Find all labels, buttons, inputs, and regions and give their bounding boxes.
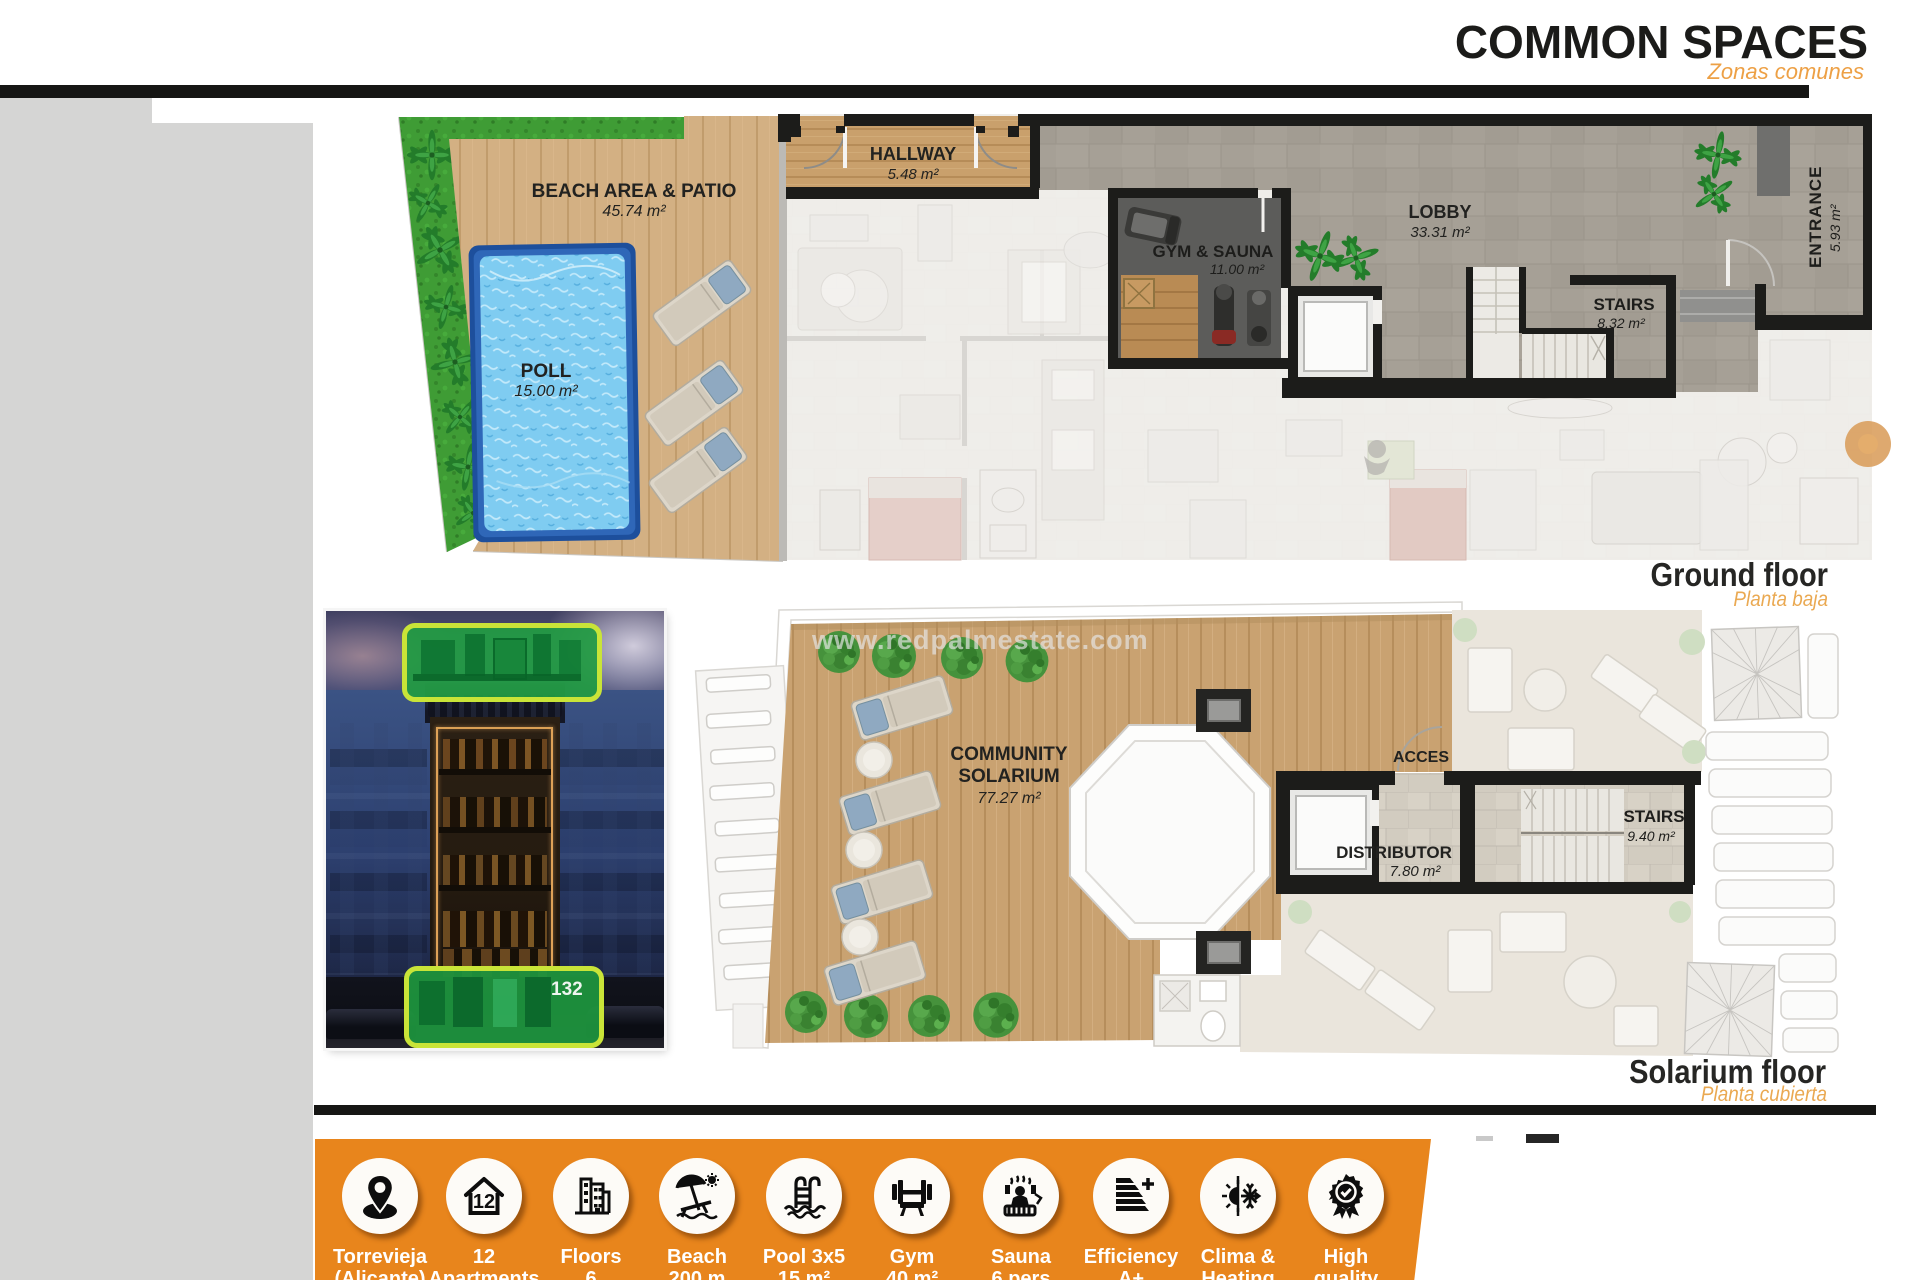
svg-text:HALLWAY: HALLWAY <box>870 144 956 164</box>
svg-text:STAIRS: STAIRS <box>1593 295 1654 314</box>
svg-text:15.00 m²: 15.00 m² <box>514 383 578 400</box>
svg-text:77.27 m²: 77.27 m² <box>977 790 1041 807</box>
svg-text:33.31 m²: 33.31 m² <box>1410 224 1470 241</box>
svg-text:45.74 m²: 45.74 m² <box>602 203 666 220</box>
svg-text:8.32 m²: 8.32 m² <box>1597 315 1646 331</box>
svg-text:COMMUNITY: COMMUNITY <box>950 744 1067 765</box>
svg-text:ACCES: ACCES <box>1393 749 1449 766</box>
svg-text:11.00 m²: 11.00 m² <box>1210 261 1266 277</box>
svg-text:7.80 m²: 7.80 m² <box>1390 863 1442 880</box>
svg-text:12: 12 <box>473 1191 495 1213</box>
svg-text:9.40 m²: 9.40 m² <box>1627 828 1676 844</box>
svg-text:5.93 m²: 5.93 m² <box>1827 203 1843 252</box>
svg-text:ENTRANCE: ENTRANCE <box>1806 166 1825 268</box>
svg-text:POLL: POLL <box>521 361 572 382</box>
svg-text:SOLARIUM: SOLARIUM <box>958 766 1059 787</box>
svg-text:BEACH AREA & PATIO: BEACH AREA & PATIO <box>532 181 737 202</box>
svg-text:DISTRIBUTOR: DISTRIBUTOR <box>1336 843 1452 862</box>
svg-text:LOBBY: LOBBY <box>1409 202 1472 222</box>
svg-text:5.48 m²: 5.48 m² <box>888 166 940 183</box>
svg-text:GYM & SAUNA: GYM & SAUNA <box>1153 242 1274 261</box>
svg-text:STAIRS: STAIRS <box>1623 807 1684 826</box>
